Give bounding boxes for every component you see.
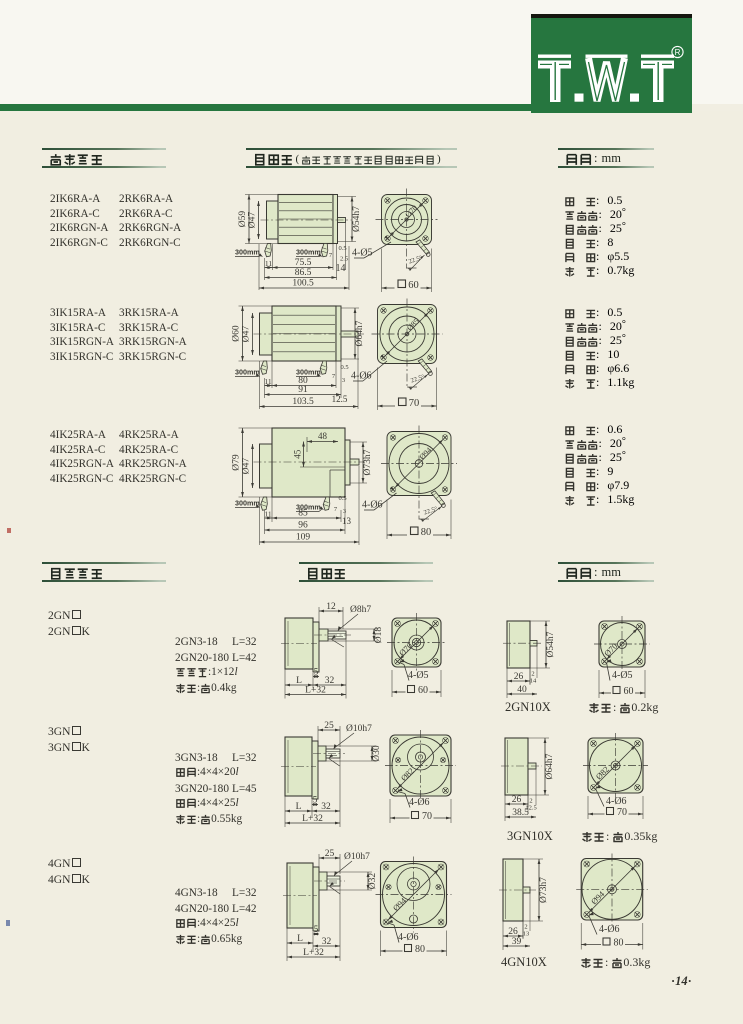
svg-text:0.5: 0.5: [340, 364, 348, 371]
svg-text:Ø59: Ø59: [238, 211, 248, 228]
svg-text:2: 2: [524, 924, 527, 931]
svg-text:5: 5: [314, 667, 319, 677]
svg-text:70: 70: [617, 807, 627, 818]
svg-text:4-Ø6: 4-Ø6: [409, 797, 430, 808]
svg-text:L: L: [296, 676, 302, 686]
svg-text:70: 70: [409, 398, 420, 409]
svg-text:25: 25: [325, 849, 335, 859]
svg-text:2: 2: [529, 798, 532, 805]
svg-text:26: 26: [512, 795, 522, 805]
svg-text:26: 26: [514, 672, 524, 682]
svg-text:80: 80: [415, 944, 425, 955]
svg-text:L+32: L+32: [303, 948, 324, 958]
svg-text:Ø47: Ø47: [242, 458, 252, 475]
svg-text:60: 60: [408, 280, 419, 291]
svg-text:Ø54h7: Ø54h7: [352, 206, 362, 232]
svg-text:7: 7: [329, 252, 333, 259]
svg-text:45: 45: [293, 449, 303, 459]
svg-text:Ø64h7: Ø64h7: [355, 320, 365, 346]
svg-text:Ø60: Ø60: [232, 325, 242, 342]
svg-text:L+32: L+32: [305, 686, 326, 696]
svg-text:80: 80: [421, 527, 432, 538]
svg-text:Ø79: Ø79: [232, 454, 242, 471]
svg-text:2: 2: [531, 671, 534, 678]
svg-text:Ø10h7: Ø10h7: [346, 724, 372, 734]
svg-text:2.5: 2.5: [340, 256, 348, 263]
svg-text:80: 80: [614, 938, 624, 949]
svg-text:70: 70: [422, 811, 432, 822]
svg-text:32: 32: [325, 676, 335, 686]
svg-text:14: 14: [336, 263, 346, 274]
svg-text:85: 85: [298, 509, 308, 519]
svg-text:75.5: 75.5: [295, 258, 312, 268]
svg-text:32: 32: [321, 802, 331, 812]
svg-text:4-Ø6: 4-Ø6: [599, 924, 620, 935]
svg-text:L: L: [297, 934, 303, 944]
svg-text:L+32: L+32: [302, 814, 323, 824]
svg-text:L: L: [296, 802, 302, 812]
svg-text:14: 14: [530, 678, 537, 685]
svg-text:Ø47: Ø47: [242, 326, 252, 343]
svg-text:4-Ø6: 4-Ø6: [398, 932, 419, 943]
svg-text:60: 60: [624, 686, 634, 697]
svg-text:Ø8h7: Ø8h7: [350, 605, 371, 615]
svg-text:Ø73h7: Ø73h7: [539, 877, 549, 903]
svg-text:Ø54h7: Ø54h7: [546, 631, 556, 657]
svg-text:25: 25: [324, 721, 334, 731]
svg-text:4-Ø5: 4-Ø5: [408, 670, 429, 681]
svg-text:4-Ø5: 4-Ø5: [352, 248, 373, 259]
svg-text:48: 48: [318, 431, 328, 441]
svg-text:300mm: 300mm: [296, 248, 321, 257]
svg-text:96: 96: [298, 521, 308, 531]
svg-text:38.5: 38.5: [512, 808, 529, 818]
svg-text:91: 91: [298, 385, 308, 395]
svg-text:12.5: 12.5: [332, 394, 348, 404]
svg-text:13: 13: [523, 931, 530, 938]
svg-text:103.5: 103.5: [292, 397, 314, 407]
svg-text:3: 3: [342, 377, 345, 384]
svg-text:Ø10h7: Ø10h7: [344, 852, 370, 862]
svg-text:7: 7: [332, 373, 336, 380]
svg-text:100.5: 100.5: [292, 279, 314, 289]
svg-text:4-Ø6: 4-Ø6: [362, 500, 383, 511]
svg-text:4-Ø6: 4-Ø6: [606, 796, 627, 807]
svg-text:13: 13: [342, 516, 352, 526]
svg-text:86.5: 86.5: [295, 268, 312, 278]
svg-text:Ø73h7: Ø73h7: [363, 449, 373, 475]
svg-text:39: 39: [512, 937, 522, 947]
svg-text:3: 3: [343, 508, 346, 515]
svg-text:Ø64h7: Ø64h7: [545, 753, 555, 779]
svg-text:32: 32: [322, 937, 332, 947]
svg-text:0.5: 0.5: [338, 495, 346, 502]
svg-text:Ø47: Ø47: [248, 212, 258, 229]
svg-text:60: 60: [418, 685, 428, 696]
svg-text:300mm: 300mm: [235, 248, 260, 257]
svg-text:4-Ø5: 4-Ø5: [612, 670, 633, 681]
svg-text:11: 11: [265, 259, 272, 268]
svg-text:40: 40: [517, 685, 527, 695]
svg-text:11: 11: [264, 510, 271, 519]
svg-text:5: 5: [313, 795, 318, 805]
svg-text:7: 7: [334, 506, 338, 513]
svg-text:5: 5: [314, 924, 319, 934]
svg-text:Ø30: Ø30: [372, 745, 382, 762]
svg-text:12: 12: [326, 602, 336, 612]
svg-text:11: 11: [264, 377, 271, 386]
svg-text:26: 26: [508, 927, 518, 937]
svg-text:Ø32: Ø32: [368, 873, 378, 890]
svg-text:109: 109: [296, 533, 311, 543]
